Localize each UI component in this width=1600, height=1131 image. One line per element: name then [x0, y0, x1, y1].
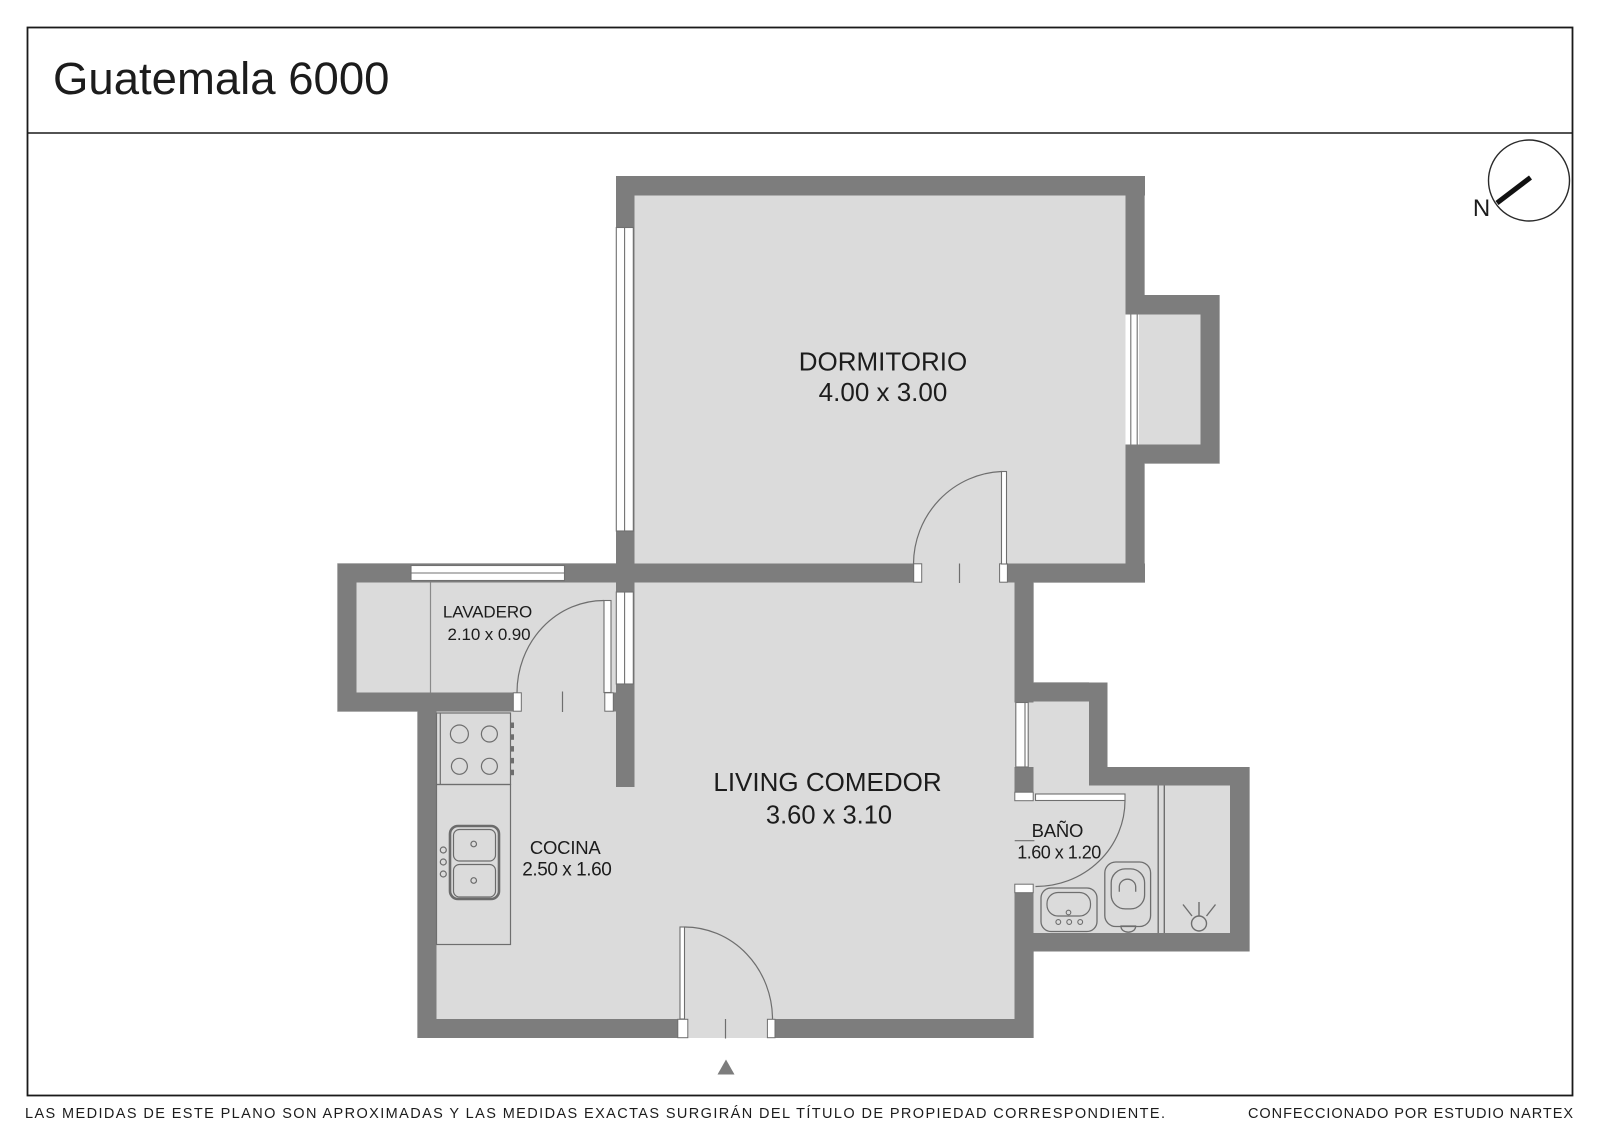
svg-text:1.60 x 1.20: 1.60 x 1.20	[1017, 843, 1101, 863]
svg-text:CONFECCIONADO POR ESTUDIO NART: CONFECCIONADO POR ESTUDIO NARTEX	[1248, 1106, 1573, 1122]
svg-text:LIVING COMEDOR: LIVING COMEDOR	[713, 767, 941, 797]
svg-text:LAVADERO: LAVADERO	[443, 603, 532, 622]
svg-text:N: N	[1473, 195, 1490, 222]
svg-text:LAS MEDIDAS DE ESTE PLANO SON: LAS MEDIDAS DE ESTE PLANO SON APROXIMADA…	[25, 1105, 1165, 1122]
svg-text:Guatemala 6000: Guatemala 6000	[53, 53, 389, 104]
svg-text:DORMITORIO: DORMITORIO	[799, 347, 968, 377]
svg-text:3.60 x 3.10: 3.60 x 3.10	[766, 802, 892, 830]
svg-text:COCINA: COCINA	[530, 837, 602, 858]
svg-text:2.10 x 0.90: 2.10 x 0.90	[447, 625, 530, 644]
svg-text:BAÑO: BAÑO	[1032, 820, 1084, 841]
svg-text:4.00 x 3.00: 4.00 x 3.00	[819, 377, 948, 407]
svg-text:2.50 x 1.60: 2.50 x 1.60	[522, 860, 611, 881]
